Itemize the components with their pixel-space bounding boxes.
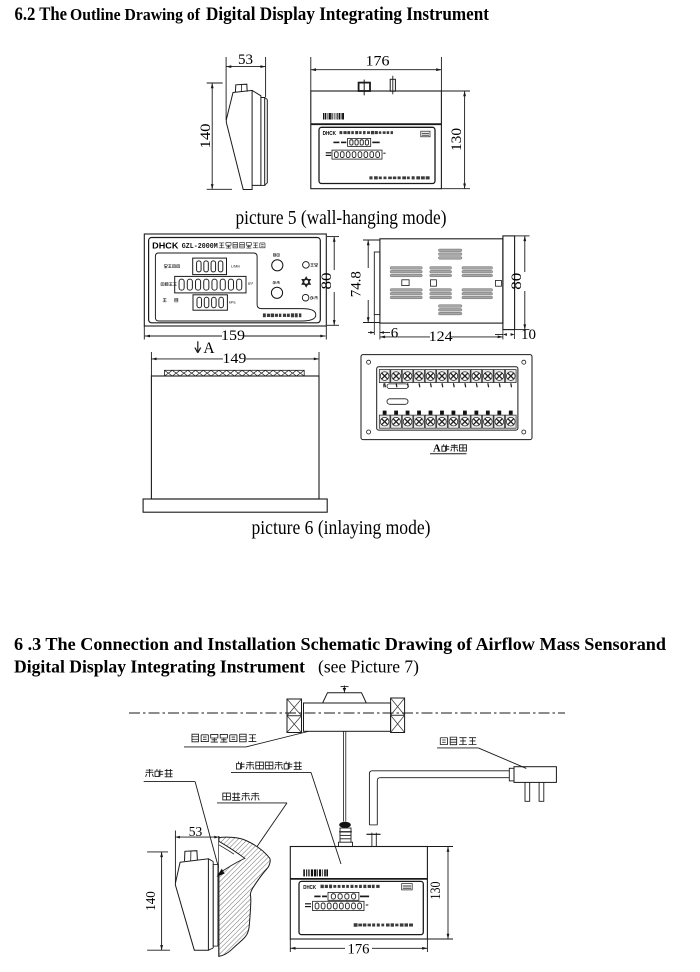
- svg-text:Digital Display Integrating In: Digital Display Integrating Instrument: [206, 5, 490, 25]
- svg-text:DHCK: DHCK: [152, 241, 179, 250]
- svg-text:picture 6 (inlaying mode): picture 6 (inlaying mode): [252, 517, 431, 539]
- svg-text:10: 10: [521, 327, 536, 343]
- svg-text:A: A: [203, 340, 215, 357]
- svg-text:6.2 The: 6.2 The: [15, 5, 68, 25]
- svg-text:kPa: kPa: [229, 300, 236, 304]
- svg-text:53: 53: [189, 825, 203, 840]
- svg-text:176: 176: [348, 941, 370, 957]
- svg-text:159: 159: [221, 328, 245, 344]
- svg-text:80: 80: [509, 273, 525, 290]
- svg-text:53: 53: [238, 52, 253, 68]
- svg-text:6 .3 The Connection and Instal: 6 .3 The Connection and Installation Sch…: [14, 634, 666, 654]
- svg-text:176: 176: [366, 54, 391, 70]
- svg-text:Outline Drawing of: Outline Drawing of: [70, 5, 200, 24]
- svg-text:A: A: [433, 444, 441, 455]
- svg-text:149: 149: [222, 351, 246, 367]
- svg-text:140: 140: [198, 124, 214, 149]
- svg-text:6: 6: [391, 325, 399, 341]
- svg-text:DHCK: DHCK: [303, 885, 316, 891]
- svg-text:124: 124: [429, 329, 454, 345]
- svg-text:GZL-2000M: GZL-2000M: [182, 243, 218, 251]
- svg-text:74.8: 74.8: [349, 271, 365, 297]
- svg-text:DHCK: DHCK: [323, 131, 336, 137]
- svg-text:m³: m³: [248, 281, 253, 286]
- svg-text:80: 80: [319, 273, 335, 290]
- svg-text:130: 130: [449, 128, 465, 151]
- svg-text:Digital Display Integrating In: Digital Display Integrating Instrument: [14, 657, 305, 677]
- svg-text:(see Picture 7): (see Picture 7): [318, 657, 419, 677]
- svg-text:140: 140: [144, 891, 159, 911]
- svg-text:picture 5 (wall-hanging mode): picture 5 (wall-hanging mode): [236, 207, 447, 229]
- svg-text:L/Min: L/Min: [231, 264, 240, 268]
- svg-text:130: 130: [428, 882, 444, 900]
